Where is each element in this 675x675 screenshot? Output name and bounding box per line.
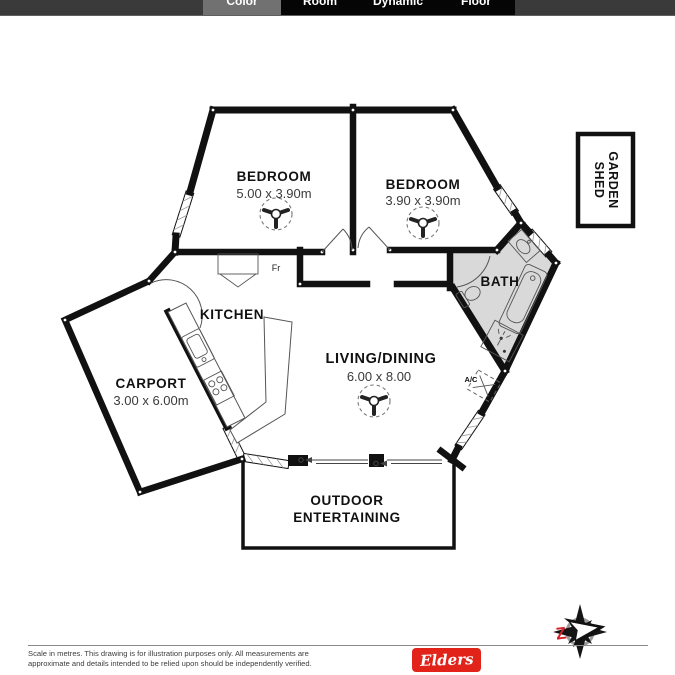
ac-label: A/C — [465, 375, 479, 384]
fan-bedroom2 — [407, 207, 439, 239]
kitchen-label: KITCHEN — [200, 307, 264, 322]
fan-bedroom1 — [260, 198, 292, 230]
footer-divider — [28, 645, 648, 646]
fan-living — [358, 385, 390, 417]
bedroom2-label: BEDROOM — [386, 177, 461, 192]
fridge-label: Fr — [272, 263, 281, 273]
kitchen-island — [230, 317, 292, 443]
garden-shed-label-1: GARDEN — [606, 151, 620, 208]
tab-dynamic[interactable]: Dynamic — [359, 0, 437, 15]
disclaimer-line-1: Scale in metres. This drawing is for ill… — [28, 649, 312, 659]
compass: Z — [553, 604, 608, 659]
garden-shed: GARDEN SHED — [578, 134, 633, 226]
tab-room[interactable]: Room — [281, 0, 359, 15]
disclaimer-text: Scale in metres. This drawing is for ill… — [28, 649, 312, 669]
floorplan-canvas: GARDEN SHED BEDROOM 5.00 x 3.90m BEDROOM… — [0, 0, 675, 675]
kitchen-fixtures — [168, 254, 292, 443]
bedroom1-dims: 5.00 x 3.90m — [236, 186, 311, 201]
elders-logo-text: Elders — [419, 650, 473, 670]
carport-label: CARPORT — [116, 376, 187, 391]
tab-group: Color Room Dynamic Floor — [203, 0, 515, 15]
room-labels: BEDROOM 5.00 x 3.90m BEDROOM 3.90 x 3.90… — [113, 169, 519, 525]
tab-color[interactable]: Color — [203, 0, 281, 15]
tab-floor[interactable]: Floor — [437, 0, 515, 15]
living-dims: 6.00 x 8.00 — [347, 369, 411, 384]
pantry — [218, 254, 258, 287]
disclaimer-line-2: approximate and details intended to be r… — [28, 659, 312, 669]
floorplan-page: Color Room Dynamic Floor — [0, 0, 675, 675]
bath-label: BATH — [481, 274, 520, 289]
bedroom1-label: BEDROOM — [237, 169, 312, 184]
wall-cap — [288, 455, 308, 466]
outdoor-label-2: ENTERTAINING — [293, 510, 400, 525]
wall-post — [369, 454, 384, 467]
tab-bar: Color Room Dynamic Floor — [0, 0, 675, 16]
outdoor-label-1: OUTDOOR — [310, 493, 383, 508]
living-label: LIVING/DINING — [326, 351, 437, 367]
compass-letter: Z — [555, 623, 568, 643]
garden-shed-label-2: SHED — [592, 162, 606, 199]
bedroom2-dims: 3.90 x 3.90m — [385, 193, 460, 208]
elders-logo: Elders — [412, 648, 481, 672]
carport-dims: 3.00 x 6.00m — [113, 393, 188, 408]
